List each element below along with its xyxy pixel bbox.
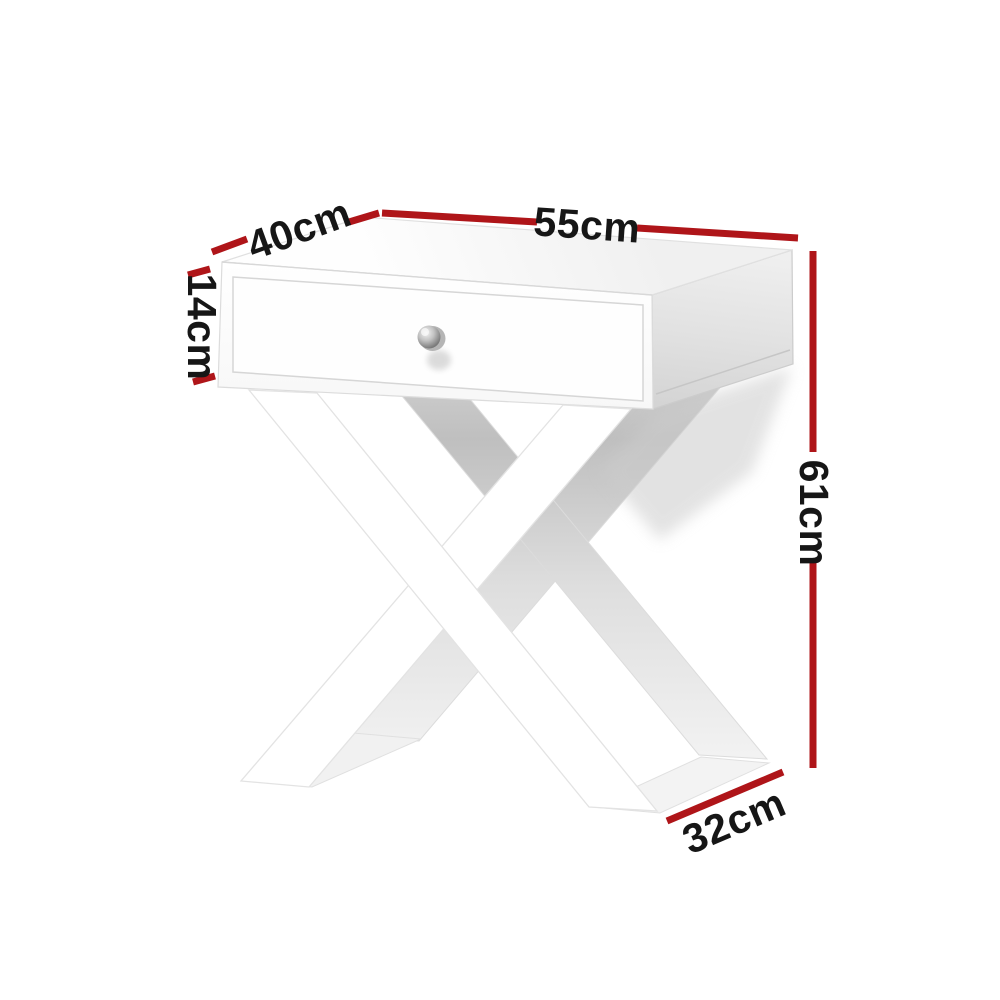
dimension-diagram-svg: 40cm 55cm 14cm 61cm 32cm xyxy=(0,0,1000,1000)
dim-14cm-label: 14cm xyxy=(179,274,225,381)
dim-55cm-label: 55cm xyxy=(532,198,642,251)
product-dimension-image: 40cm 55cm 14cm 61cm 32cm xyxy=(0,0,1000,1000)
drawer-knob xyxy=(418,326,441,349)
drawer-knob-shadow xyxy=(427,350,451,370)
dim-40cm-dash-left xyxy=(212,239,247,252)
knob-highlight xyxy=(421,328,429,336)
dim-61cm-label: 61cm xyxy=(791,460,837,567)
dim-55cm-line-right xyxy=(637,228,798,238)
